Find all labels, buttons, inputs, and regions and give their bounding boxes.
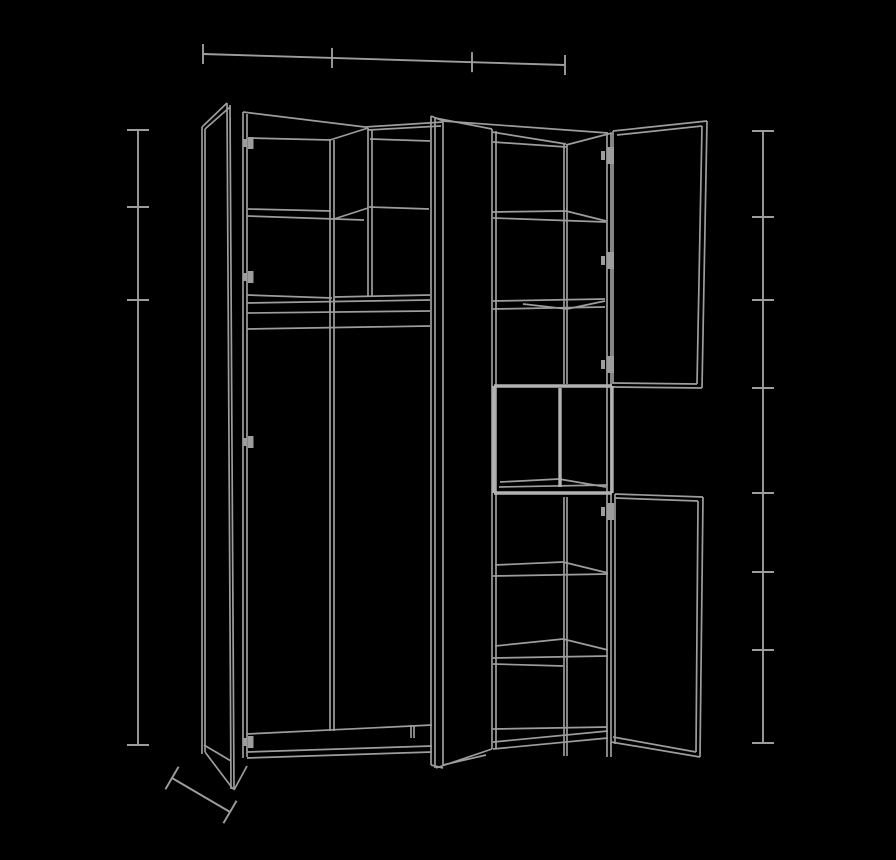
depth-dimension [165,767,236,823]
left-height-dimension [127,130,149,745]
wardrobe-line-art [202,103,707,790]
technical-drawing [0,0,896,860]
right-height-dimension [752,131,774,743]
drawing-stage [0,0,896,860]
highlighted-compartment[interactable] [494,386,612,493]
top-width-dimension [203,44,565,75]
